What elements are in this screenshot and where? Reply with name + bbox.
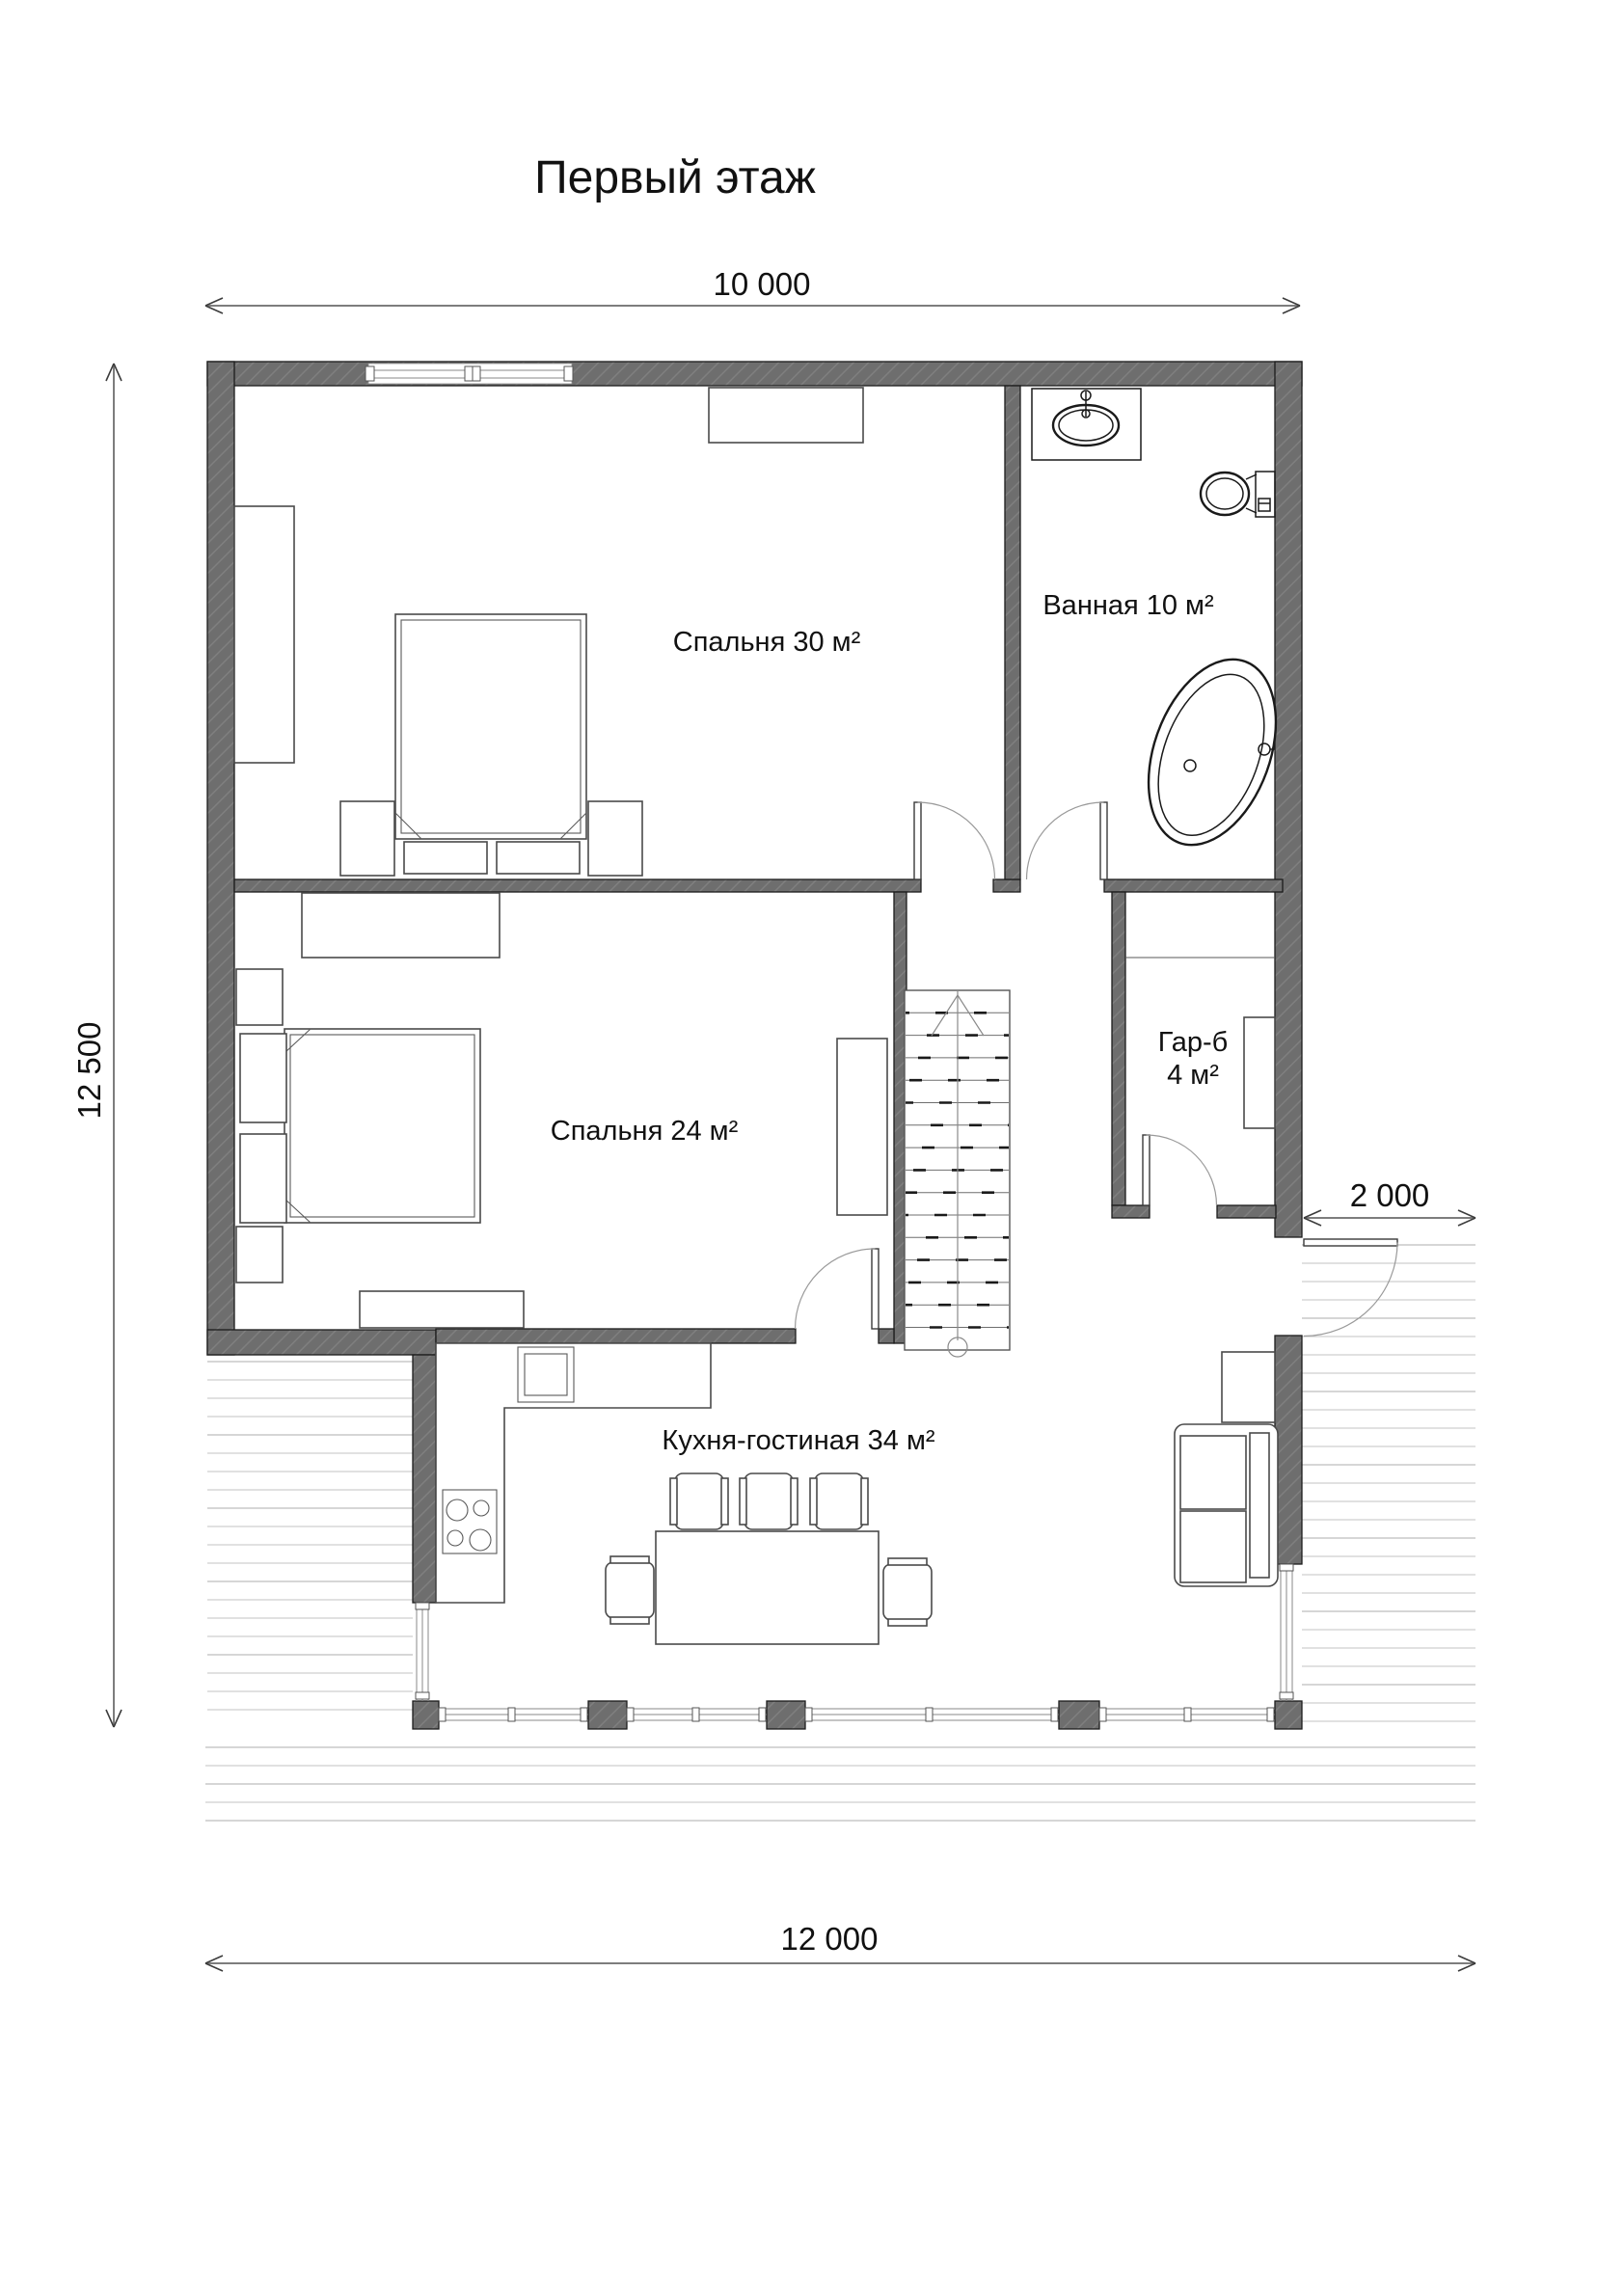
pillar-3 <box>767 1701 805 1729</box>
wall-wardrobe-west <box>1112 892 1125 1205</box>
nightstand-icon <box>588 801 642 876</box>
chair-icon <box>606 1556 654 1624</box>
desk-icon <box>837 1039 887 1215</box>
window-icon <box>1099 1708 1275 1721</box>
stairs-up-icon <box>905 990 1010 1357</box>
wall-stub <box>879 1329 894 1343</box>
window-icon <box>439 1708 588 1721</box>
pillar-2 <box>588 1701 627 1729</box>
chair-icon <box>670 1473 728 1529</box>
chair-icon <box>740 1473 798 1529</box>
sofa-icon <box>1175 1424 1278 1586</box>
wall-wardrobe-south-1 <box>1112 1205 1150 1218</box>
dresser-icon <box>302 893 500 958</box>
label-bedroom30: Спальня 30 м² <box>673 627 861 658</box>
wall-left <box>207 362 234 1355</box>
nightstand-icon <box>340 801 394 876</box>
wall-wardrobe-south-2 <box>1217 1205 1276 1218</box>
window-icon <box>365 364 573 384</box>
pillow-icon <box>497 842 580 874</box>
door-swing-icon <box>1027 802 1108 879</box>
chair-icon <box>883 1558 932 1626</box>
floor-plan-page: 10 000 12 500 2 000 12 000 Первый этаж С… <box>0 0 1624 2296</box>
door-swing-icon <box>1304 1239 1397 1337</box>
bench-icon <box>360 1291 524 1328</box>
label-wardrobe-name: Гар-б <box>1158 1027 1229 1058</box>
wall-right-upper <box>1275 362 1302 1237</box>
pillow-icon <box>240 1134 286 1223</box>
double-bed-icon <box>395 614 586 874</box>
door-swing-icon <box>914 802 995 879</box>
label-bathroom: Ванная 10 м² <box>1042 590 1214 621</box>
dimension-terrace-right: 2 000 <box>1350 1177 1430 1213</box>
wall-kitchen-west <box>413 1355 436 1603</box>
page-title: Первый этаж <box>534 152 816 203</box>
bedroom24-furniture <box>236 893 887 1328</box>
label-kitchen: Кухня-гостиная 34 м² <box>662 1425 934 1456</box>
window-icon <box>416 1603 429 1701</box>
label-wardrobe-area: 4 м² <box>1167 1060 1219 1091</box>
window-icon <box>805 1708 1059 1721</box>
window-icon <box>1280 1564 1293 1701</box>
wall-right-mid <box>1275 1336 1302 1564</box>
bathtub-icon <box>1124 642 1299 863</box>
double-bed-icon <box>240 1029 480 1223</box>
wall-divider-c <box>1104 879 1283 892</box>
wall-divider-b <box>993 879 1020 892</box>
wall-bathroom-west <box>1005 386 1020 879</box>
wardrobe-icon <box>234 506 294 763</box>
dimension-height-left: 12 500 <box>71 1022 107 1120</box>
pillar-4 <box>1059 1701 1099 1729</box>
pillow-icon <box>240 1034 286 1122</box>
pillar-1 <box>413 1701 439 1729</box>
dining-table-icon <box>656 1531 879 1644</box>
dimension-width-top: 10 000 <box>714 266 811 302</box>
wall-kitchen-north <box>436 1329 796 1343</box>
door-swing-icon <box>796 1249 880 1329</box>
toilet-icon <box>1201 472 1275 517</box>
bathroom-fixtures <box>1032 389 1300 862</box>
label-bedroom24: Спальня 24 м² <box>551 1116 739 1147</box>
wall-bedroom24-south <box>207 1330 436 1355</box>
chair-icon <box>810 1473 868 1529</box>
sink-vanity-icon <box>1032 389 1141 460</box>
nightstand-icon <box>236 1227 283 1283</box>
dimension-width-bottom: 12 000 <box>781 1921 879 1957</box>
door-swing-icon <box>1143 1135 1217 1205</box>
pillow-icon <box>404 842 487 874</box>
tv-stand-icon <box>1222 1352 1275 1422</box>
shelf-icon <box>1244 1017 1275 1128</box>
nightstand-icon <box>236 969 283 1025</box>
window-icon <box>627 1708 767 1721</box>
kitchen-furniture <box>436 1343 1278 1644</box>
pillar-5 <box>1275 1701 1302 1729</box>
wall-divider-a <box>234 879 921 892</box>
floor-plan-svg: 10 000 12 500 2 000 12 000 Первый этаж С… <box>0 0 1624 2296</box>
closet-icon <box>709 388 863 443</box>
